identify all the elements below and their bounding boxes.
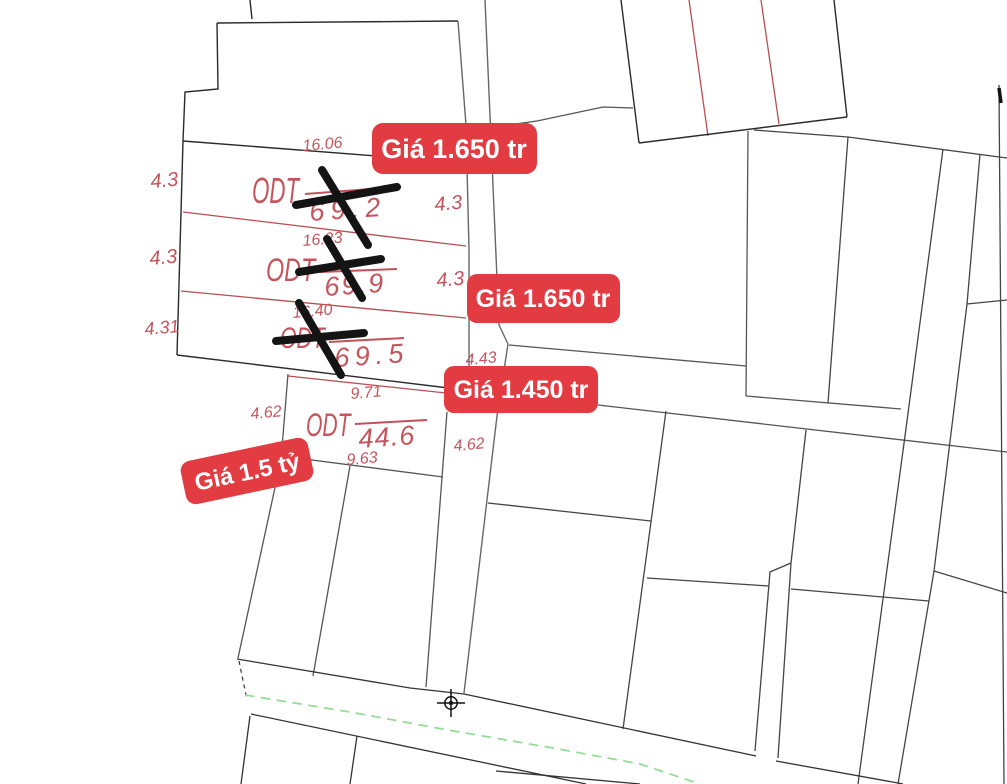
svg-text:4.31: 4.31	[144, 316, 181, 339]
svg-text:4.62: 4.62	[453, 435, 486, 455]
svg-text:ODT: ODT	[306, 406, 352, 443]
svg-text:44.6: 44.6	[357, 420, 416, 454]
svg-text:9.71: 9.71	[350, 383, 383, 403]
svg-text:4.3: 4.3	[436, 268, 466, 292]
svg-text:4.3: 4.3	[150, 169, 180, 193]
svg-text:16.06: 16.06	[302, 135, 343, 155]
svg-text:Giá 1.650 tr: Giá 1.650 tr	[476, 285, 611, 313]
svg-text:4.62: 4.62	[250, 403, 283, 423]
svg-text:9.63: 9.63	[346, 449, 379, 469]
svg-text:Giá 1.650 tr: Giá 1.650 tr	[381, 134, 527, 164]
svg-text:Giá 1.450 tr: Giá 1.450 tr	[454, 376, 589, 404]
svg-text:4.3: 4.3	[149, 246, 179, 270]
svg-text:16.23: 16.23	[302, 230, 343, 250]
svg-text:4.3: 4.3	[434, 192, 464, 216]
